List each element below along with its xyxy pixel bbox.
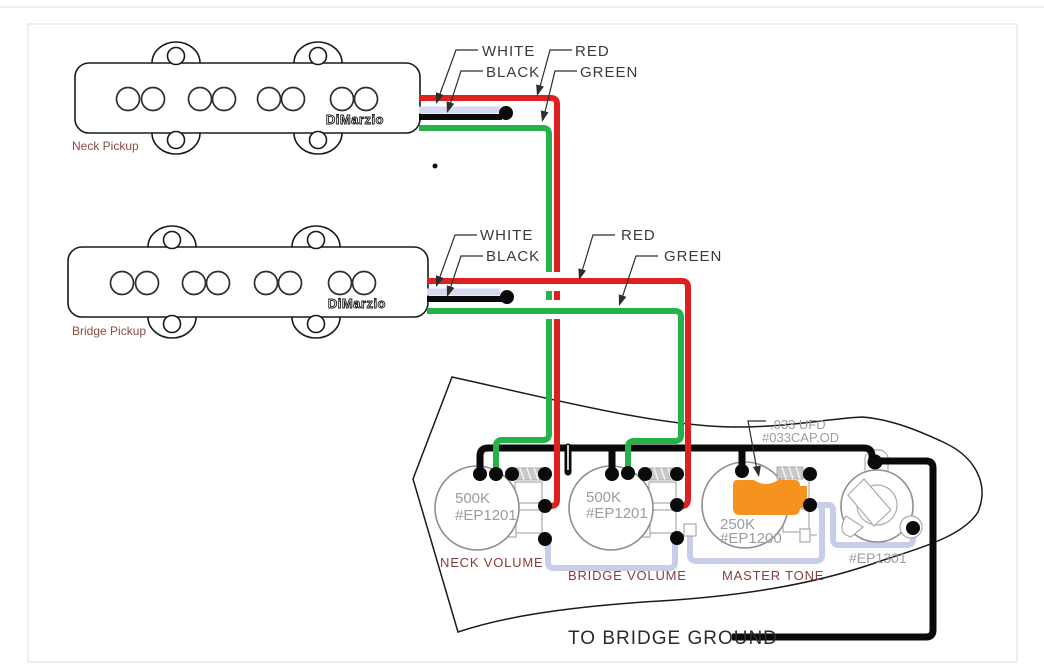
mount-screw-hole [164, 316, 181, 333]
mount-screw-hole [310, 132, 327, 149]
bridge-volume-label: BRIDGE VOLUME [568, 568, 687, 583]
bridge-pickup-label: Bridge Pickup [72, 324, 146, 338]
pot-part-number: #EP1200 [720, 530, 782, 547]
mount-screw-hole [308, 232, 325, 249]
pot-part-number: #EP1201 [455, 507, 517, 524]
jack-part-number: #EP1301 [849, 550, 907, 566]
neck-volume-label: NECK VOLUME [440, 555, 543, 570]
neck-pickup: DiMarzio Neck Pickup [72, 42, 420, 154]
white-wire-label: WHITE [480, 227, 533, 244]
pot-part-number: #EP1201 [586, 505, 648, 522]
pot-value: 500K [455, 490, 490, 507]
brand-logo: DiMarzio [326, 112, 384, 127]
mount-screw-hole [168, 132, 185, 149]
white-wire-label: WHITE [482, 43, 535, 60]
master-tone-label: MASTER TONE [722, 568, 824, 583]
green-wire-label: GREEN [580, 64, 638, 81]
stray-dot [433, 164, 438, 169]
brand-logo: DiMarzio [328, 296, 386, 311]
mount-screw-hole [310, 48, 327, 65]
bridge-pickup: DiMarzio Bridge Pickup [68, 226, 428, 338]
bridge-ground-label: TO BRIDGE GROUND [568, 628, 778, 649]
red-wire-label: RED [575, 43, 610, 60]
lug-ribbon [777, 467, 803, 479]
pot-value: 500K [586, 489, 621, 506]
capacitor-part-number: #033CAP.OD [762, 430, 839, 445]
wiring-diagram: DiMarzio Neck Pickup DiMarzio Bridge Pic… [0, 0, 1044, 664]
mount-screw-hole [164, 232, 181, 249]
mount-screw-hole [168, 48, 185, 65]
green-wire-label: GREEN [664, 248, 722, 265]
black-wire-label: BLACK [486, 64, 540, 81]
black-wire-label: BLACK [486, 248, 540, 265]
mount-screw-hole [308, 316, 325, 333]
neck-pickup-label: Neck Pickup [72, 139, 139, 153]
red-wire-label: RED [621, 227, 656, 244]
